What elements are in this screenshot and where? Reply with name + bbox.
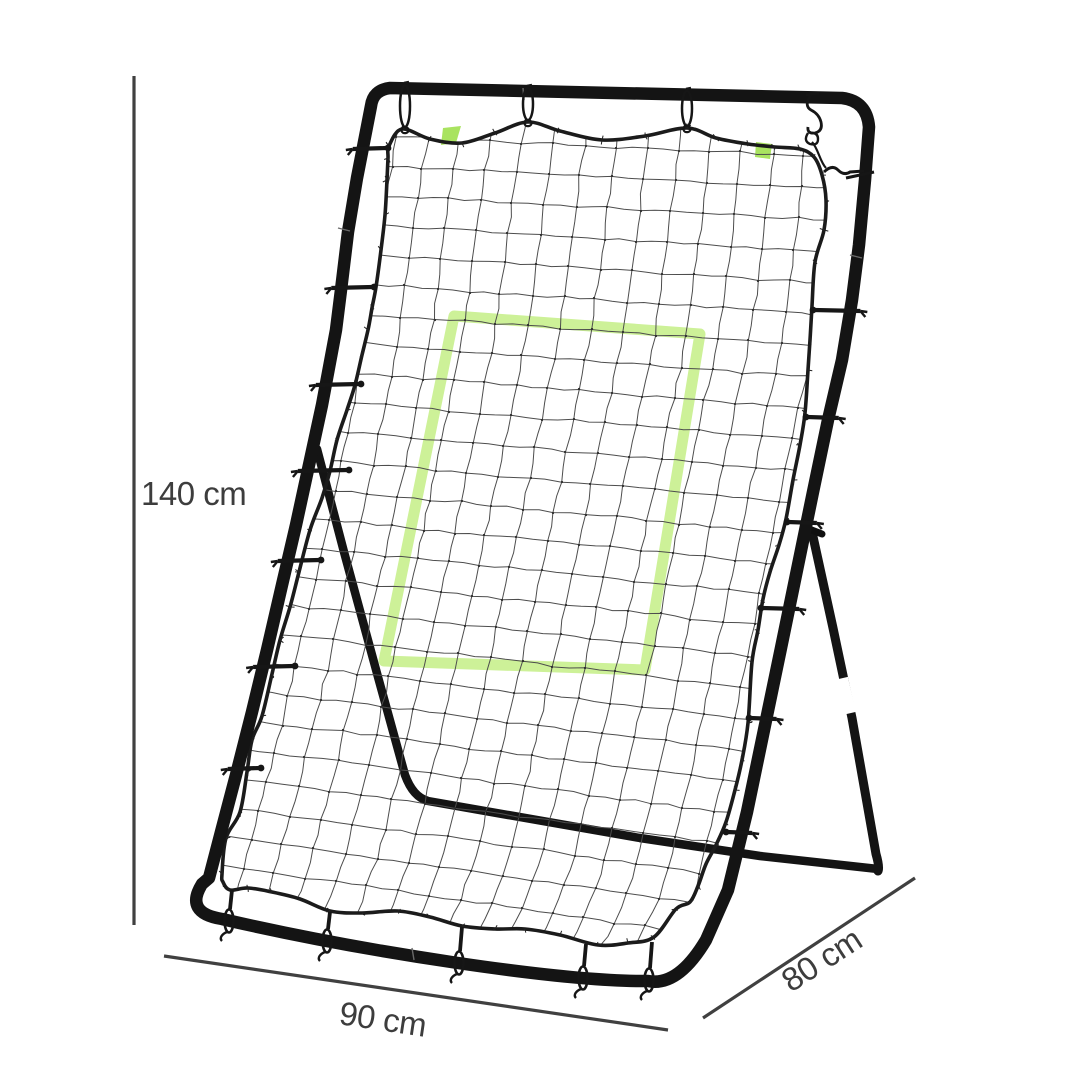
svg-text:140 cm: 140 cm <box>141 475 246 512</box>
